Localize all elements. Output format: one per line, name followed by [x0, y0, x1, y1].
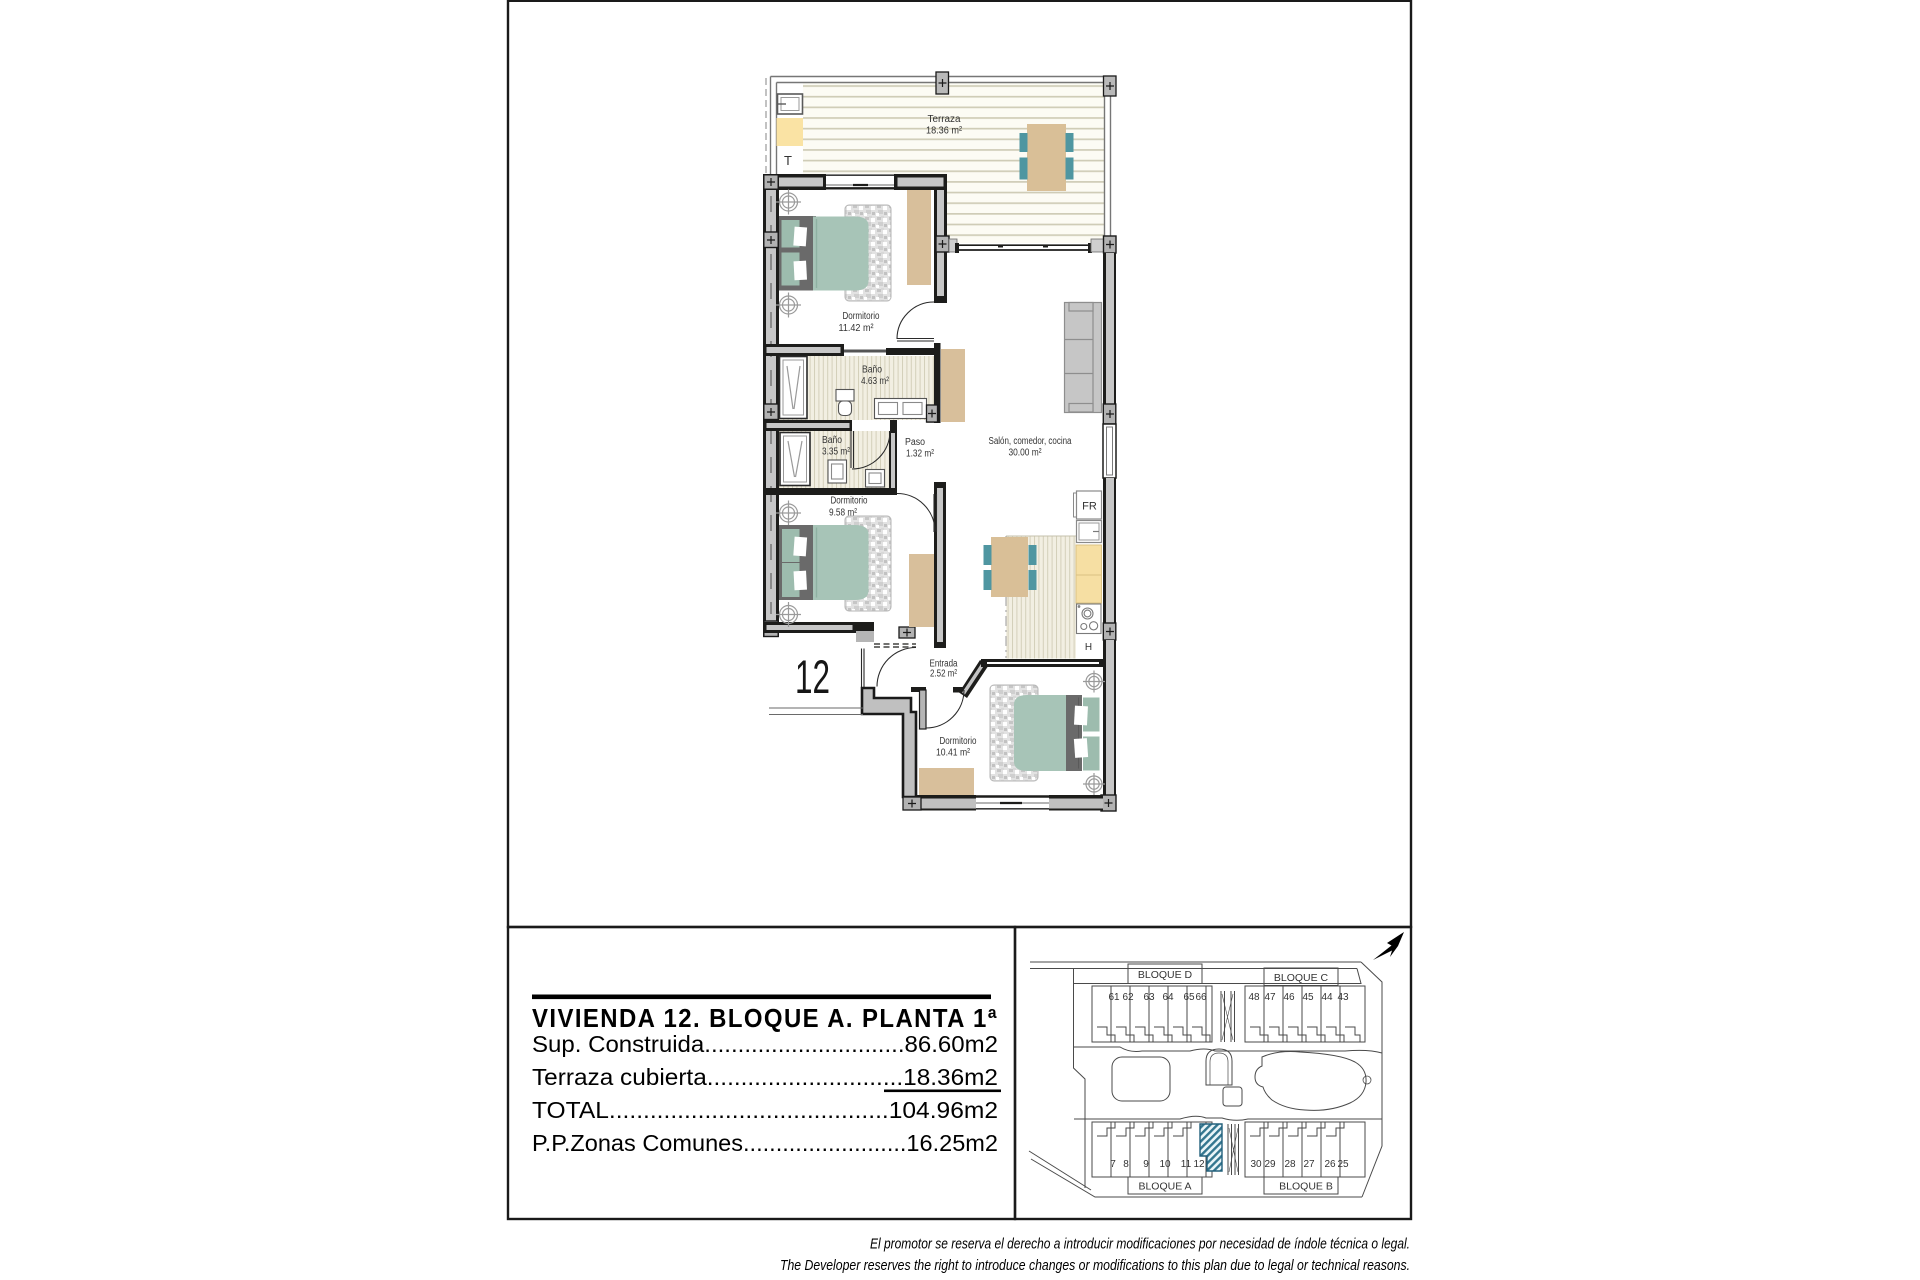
- svg-text:H: H: [1085, 642, 1092, 653]
- svg-text:Baño: Baño: [862, 365, 882, 376]
- svg-text:T: T: [784, 153, 792, 168]
- svg-text:29: 29: [1264, 1159, 1276, 1170]
- svg-text:44: 44: [1321, 992, 1333, 1003]
- svg-text:4.63 m²: 4.63 m²: [861, 376, 890, 387]
- svg-text:25: 25: [1337, 1159, 1349, 1170]
- svg-text:BLOQUE C: BLOQUE C: [1274, 972, 1329, 984]
- svg-text:Baño: Baño: [822, 435, 842, 446]
- svg-text:P.P.Zonas Comunes.............: P.P.Zonas Comunes.......................…: [532, 1130, 998, 1156]
- svg-text:Salón, comedor, cocina: Salón, comedor, cocina: [989, 436, 1072, 447]
- svg-text:Dormitorio: Dormitorio: [831, 496, 868, 507]
- svg-text:BLOQUE B: BLOQUE B: [1279, 1181, 1333, 1193]
- svg-text:Sup. Construida...............: Sup. Construida.........................…: [532, 1031, 998, 1057]
- svg-text:11.42 m²: 11.42 m²: [839, 323, 875, 334]
- svg-text:TOTAL.........................: TOTAL...................................…: [532, 1097, 998, 1123]
- svg-text:1.32 m²: 1.32 m²: [906, 449, 935, 460]
- svg-text:BLOQUE A: BLOQUE A: [1138, 1181, 1191, 1193]
- svg-text:3.35 m²: 3.35 m²: [822, 447, 851, 458]
- svg-text:27: 27: [1303, 1159, 1315, 1170]
- svg-text:63: 63: [1143, 992, 1155, 1003]
- svg-text:2.52 m²: 2.52 m²: [930, 669, 958, 680]
- svg-text:El promotor se reserva el dere: El promotor se reserva el derecho a intr…: [870, 1237, 1410, 1253]
- svg-text:Terraza cubierta..............: Terraza cubierta........................…: [532, 1064, 998, 1090]
- svg-text:45: 45: [1302, 992, 1314, 1003]
- svg-text:46: 46: [1283, 992, 1295, 1003]
- svg-text:VIVIENDA 12. BLOQUE A. PLANTA: VIVIENDA 12. BLOQUE A. PLANTA 1ª: [532, 1005, 998, 1033]
- svg-text:The Developer reserves the rig: The Developer reserves the right to intr…: [780, 1258, 1410, 1274]
- svg-text:43: 43: [1337, 992, 1349, 1003]
- svg-text:30.00 m²: 30.00 m²: [1009, 448, 1043, 459]
- svg-text:47: 47: [1264, 992, 1276, 1003]
- svg-text:10.41 m²: 10.41 m²: [936, 748, 971, 759]
- svg-text:26: 26: [1324, 1159, 1336, 1170]
- svg-text:Paso: Paso: [905, 437, 925, 448]
- svg-text:64: 64: [1162, 992, 1174, 1003]
- svg-text:28: 28: [1284, 1159, 1296, 1170]
- svg-text:Dormitorio: Dormitorio: [843, 311, 880, 322]
- svg-text:12: 12: [1193, 1159, 1205, 1170]
- svg-text:9.58 m²: 9.58 m²: [829, 508, 858, 519]
- svg-text:7: 7: [1110, 1159, 1116, 1170]
- svg-text:30: 30: [1250, 1159, 1262, 1170]
- svg-text:FR: FR: [1082, 501, 1097, 513]
- svg-text:18.36 m²: 18.36 m²: [926, 126, 963, 137]
- svg-text:10: 10: [1159, 1159, 1171, 1170]
- svg-text:48: 48: [1248, 992, 1260, 1003]
- svg-text:66: 66: [1195, 992, 1207, 1003]
- svg-text:11: 11: [1181, 1159, 1192, 1170]
- svg-text:BLOQUE D: BLOQUE D: [1138, 969, 1193, 981]
- svg-text:65: 65: [1183, 992, 1195, 1003]
- svg-text:61: 61: [1108, 992, 1120, 1003]
- svg-text:8: 8: [1123, 1159, 1129, 1170]
- svg-text:9: 9: [1143, 1159, 1149, 1170]
- svg-text:Dormitorio: Dormitorio: [940, 736, 977, 747]
- svg-text:Terraza: Terraza: [928, 114, 961, 125]
- svg-text:12: 12: [795, 650, 830, 703]
- svg-text:62: 62: [1122, 992, 1134, 1003]
